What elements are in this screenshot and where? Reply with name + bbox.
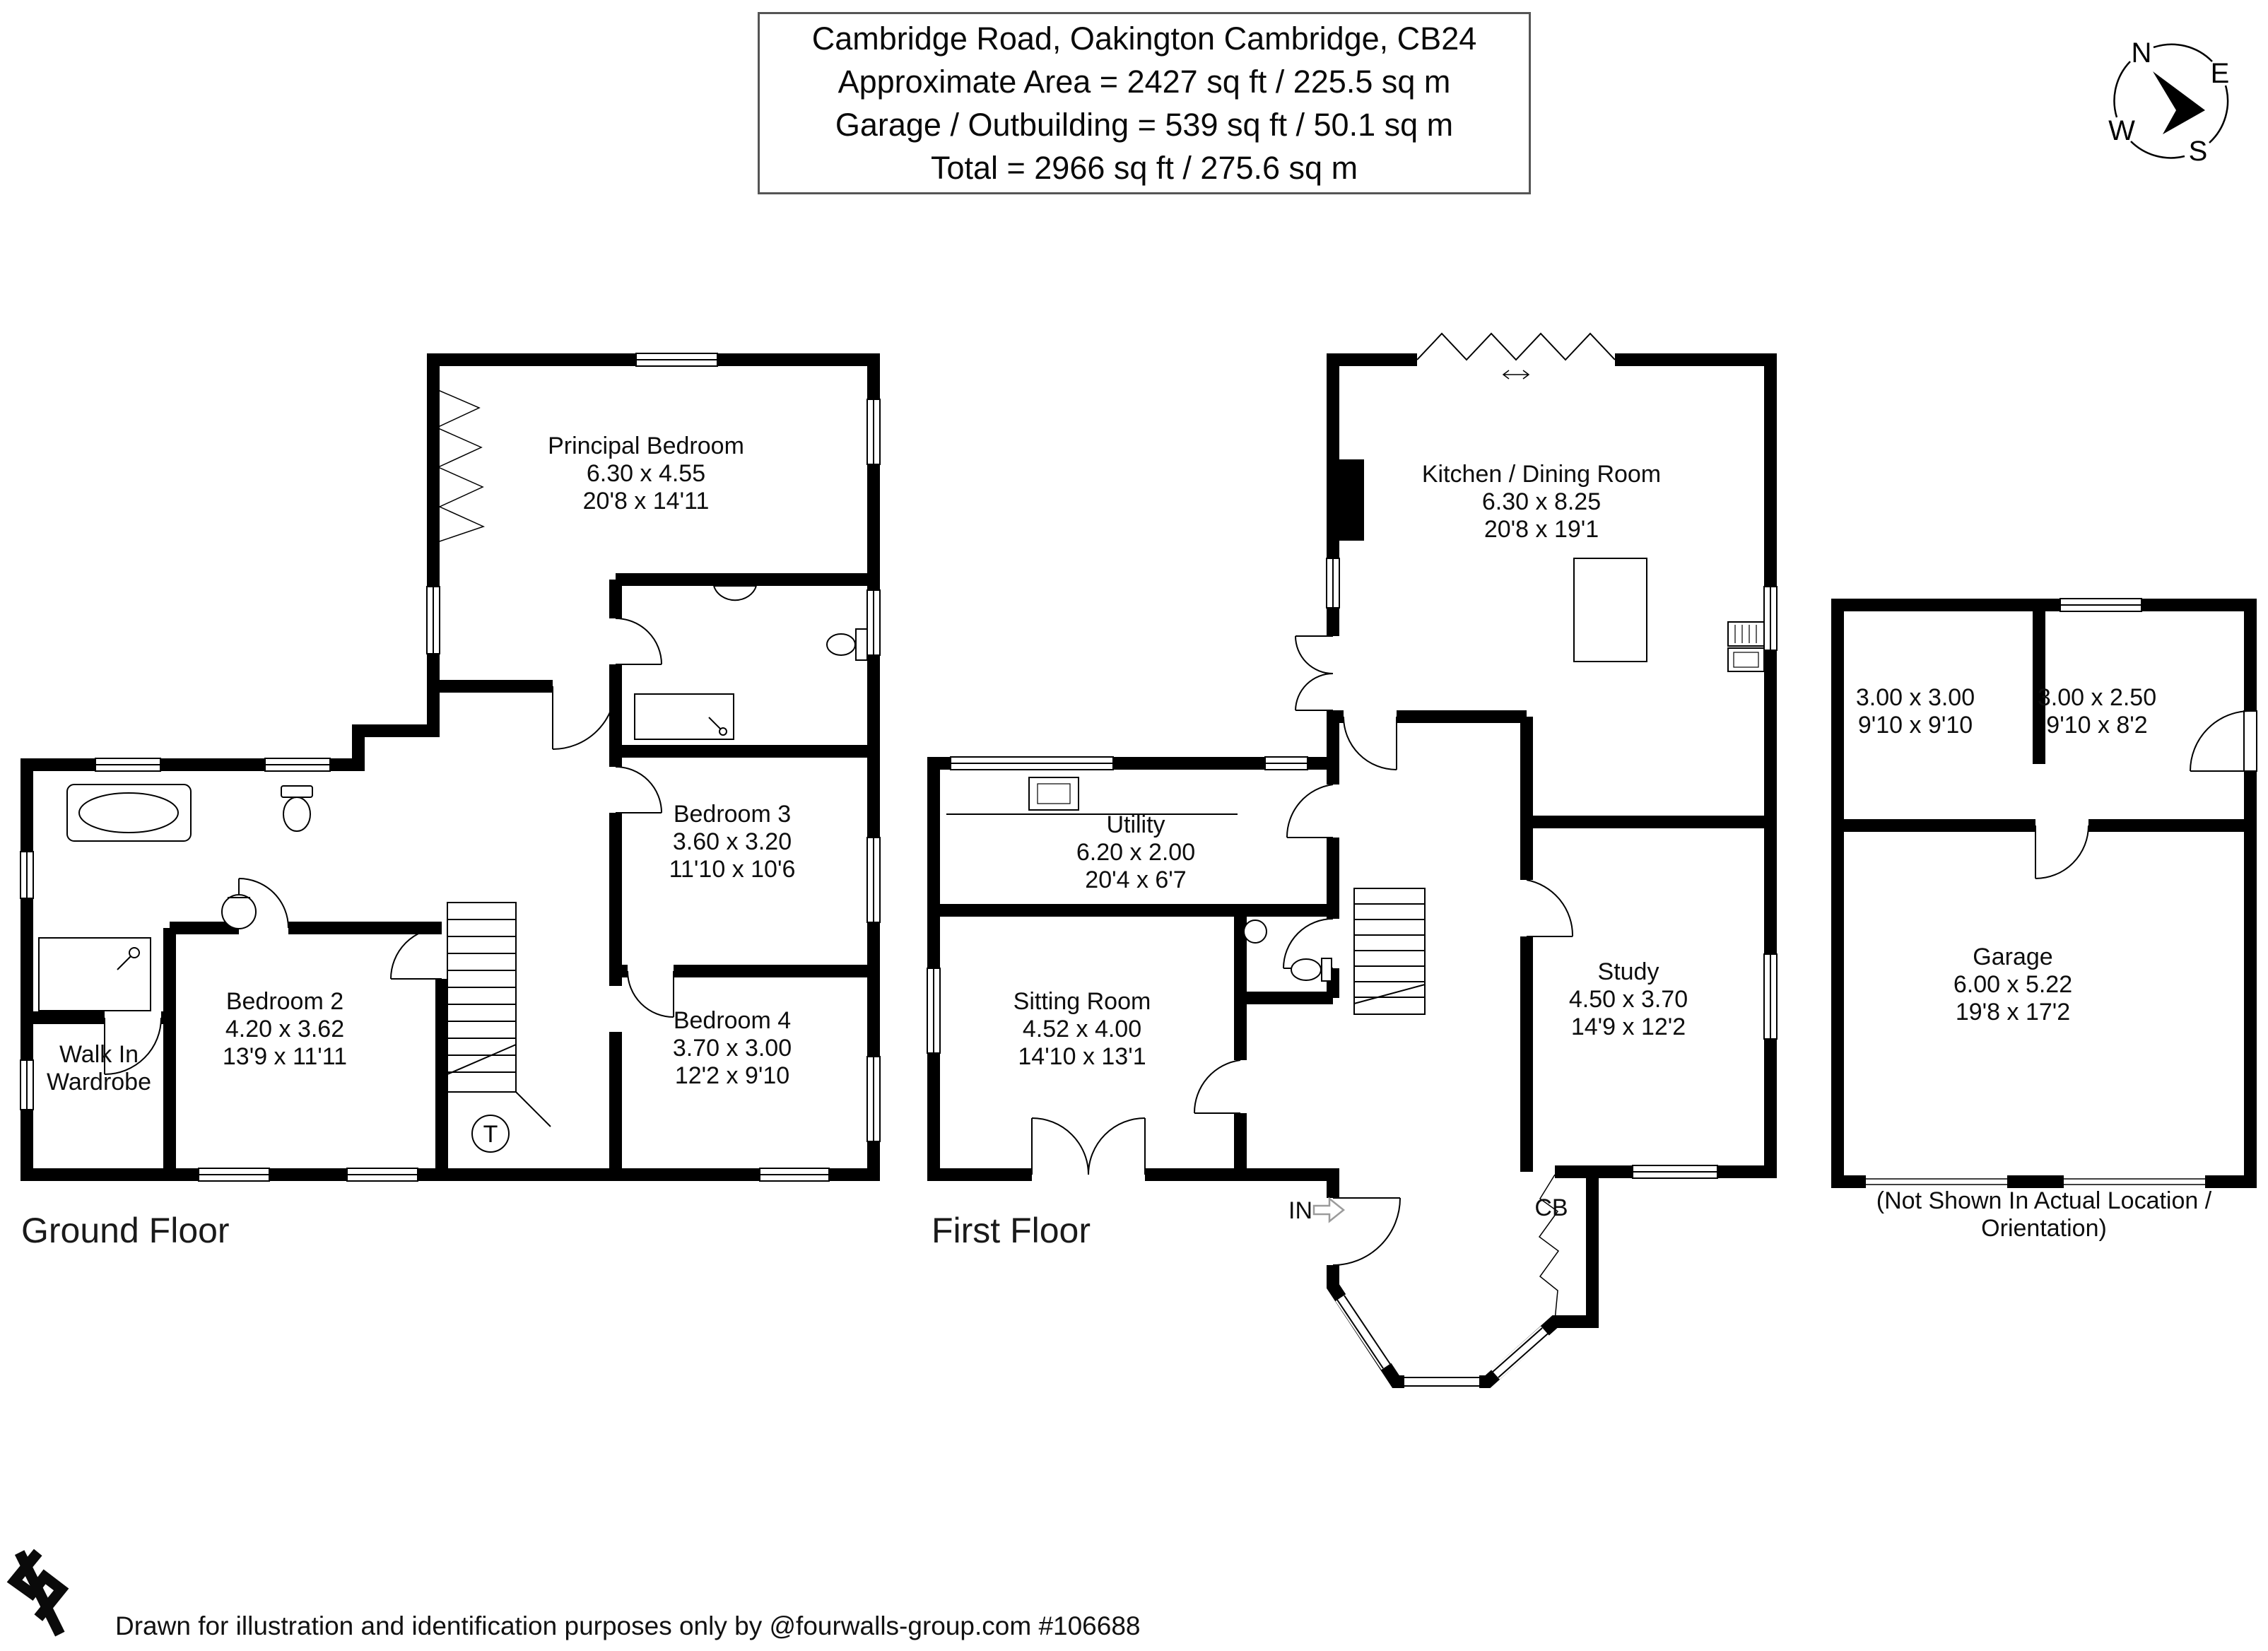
- room-name: Garage: [1907, 944, 2119, 971]
- room-dims-metric: 4.52 x 4.00: [976, 1016, 1188, 1043]
- title-box: Cambridge Road, Oakington Cambridge, CB2…: [758, 12, 1531, 194]
- bathtub-basin: [79, 793, 178, 833]
- room-label-bedroom-2: Bedroom 2 4.20 x 3.62 13'9 x 11'11: [179, 988, 391, 1071]
- outbuilding-note: (Not Shown In Actual Location / Orientat…: [1832, 1187, 2256, 1242]
- room-label-store-2: 3.00 x 2.50 9'10 x 8'2: [1991, 684, 2203, 739]
- room-dims-metric: 3.60 x 3.20: [626, 828, 838, 856]
- room-dims-metric: 6.00 x 5.22: [1907, 971, 2119, 999]
- room-dims-imperial: 14'10 x 13'1: [976, 1043, 1188, 1071]
- room-name: Bedroom 4: [626, 1007, 838, 1035]
- attribution-text: Drawn for illustration and identificatio…: [115, 1611, 1141, 1641]
- room-label-bedroom-4: Bedroom 4 3.70 x 3.00 12'2 x 9'10: [626, 1007, 838, 1090]
- sink-fixture: [222, 895, 256, 929]
- room-label-principal-bedroom: Principal Bedroom 6.30 x 4.55 20'8 x 14'…: [505, 433, 787, 515]
- wc-sink-fixture: [1244, 920, 1267, 943]
- room-name: Bedroom 2: [179, 988, 391, 1016]
- kitchen-drainer: [1728, 622, 1764, 646]
- room-name: Kitchen / Dining Room: [1421, 461, 1662, 488]
- room-dims-imperial: 20'8 x 19'1: [1421, 516, 1662, 544]
- room-name: Utility: [1030, 811, 1242, 839]
- total-area-line: Total = 2966 sq ft / 275.6 sq m: [760, 146, 1529, 189]
- room-name: Study: [1522, 958, 1734, 986]
- cupboard-label: CB: [1527, 1194, 1576, 1222]
- room-label-walk-in-wardrobe: Walk In Wardrobe: [28, 1041, 170, 1096]
- room-dims-metric: 4.20 x 3.62: [179, 1016, 391, 1043]
- garage-area-line: Garage / Outbuilding = 539 sq ft / 50.1 …: [760, 103, 1529, 146]
- thermostat-letter: T: [483, 1121, 498, 1148]
- wc-toilet-fixture: [1291, 959, 1321, 980]
- room-dims-metric: 4.50 x 3.70: [1522, 986, 1734, 1013]
- compass-w: W: [2108, 115, 2135, 146]
- store-door-opening: [2244, 711, 2257, 771]
- ensuite-toilet-fixture: [827, 634, 855, 655]
- room-dims-metric: 3.00 x 3.00: [1809, 684, 2021, 712]
- compass-needle: [2153, 71, 2205, 134]
- thermostat-marker: T: [472, 1115, 509, 1152]
- compass-letters: N E W S: [2108, 37, 2229, 167]
- first-floor-title: First Floor: [932, 1210, 1091, 1251]
- room-dims-imperial: 14'9 x 12'2: [1522, 1013, 1734, 1041]
- wc-toilet-cistern: [1322, 958, 1332, 981]
- room-label-garage: Garage 6.00 x 5.22 19'8 x 17'2: [1907, 944, 2119, 1026]
- room-dims-metric: 3.70 x 3.00: [626, 1035, 838, 1062]
- toilet-cistern: [281, 786, 312, 797]
- staircase-first: [1354, 888, 1425, 1014]
- address-line: Cambridge Road, Oakington Cambridge, CB2…: [760, 17, 1529, 60]
- room-name: Principal Bedroom: [505, 433, 787, 460]
- compass-icon: N E W S: [2110, 21, 2251, 163]
- ground-floor-title: Ground Floor: [21, 1210, 230, 1251]
- room-dims-imperial: 19'8 x 17'2: [1907, 999, 2119, 1026]
- room-dims-metric: 6.20 x 2.00: [1030, 839, 1242, 866]
- room-label-utility: Utility 6.20 x 2.00 20'4 x 6'7: [1030, 811, 1242, 894]
- room-dims-imperial: 9'10 x 9'10: [1809, 712, 2021, 739]
- compass-e: E: [2211, 58, 2230, 89]
- room-name: Sitting Room: [976, 988, 1188, 1016]
- compass-n: N: [2132, 37, 2152, 69]
- room-dims-metric: 6.30 x 4.55: [505, 460, 787, 488]
- ensuite-shower-fixture: [635, 694, 734, 739]
- compass-s: S: [2189, 136, 2208, 167]
- room-label-store-1: 3.00 x 3.00 9'10 x 9'10: [1809, 684, 2021, 739]
- room-label-kitchen-dining: Kitchen / Dining Room 6.30 x 8.25 20'8 x…: [1421, 461, 1662, 544]
- toilet-fixture: [283, 797, 310, 831]
- room-dims-imperial: 9'10 x 8'2: [1991, 712, 2203, 739]
- room-dims-imperial: 11'10 x 10'6: [626, 856, 838, 883]
- room-dims-imperial: 20'8 x 14'11: [505, 488, 787, 515]
- room-label-sitting-room: Sitting Room 4.52 x 4.00 14'10 x 13'1: [976, 988, 1188, 1071]
- room-dims-imperial: 12'2 x 9'10: [626, 1062, 838, 1090]
- room-name: Bedroom 3: [626, 801, 838, 828]
- entrance-label: IN: [1279, 1197, 1322, 1225]
- floorplan-page: Cambridge Road, Oakington Cambridge, CB2…: [0, 0, 2268, 1651]
- ensuite-toilet-cistern: [856, 629, 867, 660]
- chimney-breast: [1333, 459, 1364, 541]
- room-dims-imperial: 20'4 x 6'7: [1030, 866, 1242, 894]
- room-label-bedroom-3: Bedroom 3 3.60 x 3.20 11'10 x 10'6: [626, 801, 838, 883]
- fourwalls-logo-icon: [6, 1546, 76, 1649]
- room-label-study: Study 4.50 x 3.70 14'9 x 12'2: [1522, 958, 1734, 1041]
- room-dims-metric: 6.30 x 8.25: [1421, 488, 1662, 516]
- room-dims-metric: 3.00 x 2.50: [1991, 684, 2203, 712]
- kitchen-island: [1574, 558, 1647, 662]
- room-dims-imperial: 13'9 x 11'11: [179, 1043, 391, 1071]
- room-name: Walk In Wardrobe: [28, 1041, 170, 1096]
- approx-area-line: Approximate Area = 2427 sq ft / 225.5 sq…: [760, 60, 1529, 103]
- staircase: [447, 903, 516, 1092]
